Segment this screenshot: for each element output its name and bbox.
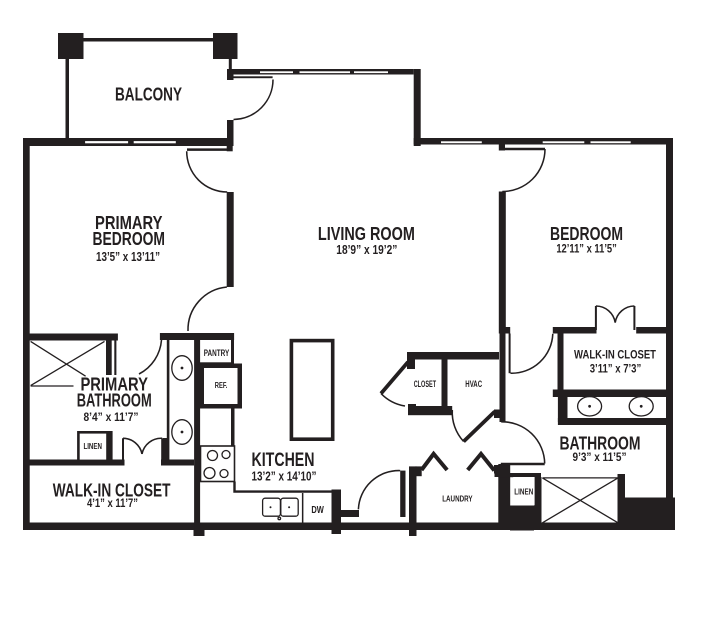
svg-text:9’3” x 11’5”: 9’3” x 11’5” <box>573 452 627 464</box>
svg-text:PANTRY: PANTRY <box>204 348 230 358</box>
svg-text:3’11” x 7’3”: 3’11” x 7’3” <box>590 361 642 375</box>
svg-text:13’5” x 13’11”: 13’5” x 13’11” <box>96 250 160 264</box>
svg-text:LINEN: LINEN <box>83 441 102 451</box>
svg-text:CLOSET: CLOSET <box>414 379 437 389</box>
svg-text:BEDROOM: BEDROOM <box>93 229 166 249</box>
svg-text:KITCHEN: KITCHEN <box>252 450 315 471</box>
svg-text:DW: DW <box>311 505 324 516</box>
svg-text:REF.: REF. <box>215 381 228 390</box>
svg-text:BATHROOM: BATHROOM <box>560 433 641 454</box>
svg-text:18’9” x 19’2”: 18’9” x 19’2” <box>336 243 397 257</box>
svg-text:12’11” x 11’5”: 12’11” x 11’5” <box>556 242 617 256</box>
svg-text:LIVING ROOM: LIVING ROOM <box>318 223 415 244</box>
svg-text:LINEN: LINEN <box>514 486 533 496</box>
svg-text:13’2” x 14’10”: 13’2” x 14’10” <box>252 469 317 483</box>
svg-text:BALCONY: BALCONY <box>115 84 182 105</box>
svg-text:8’4” x 11’7”: 8’4” x 11’7” <box>84 410 139 424</box>
svg-text:HVAC: HVAC <box>465 379 482 389</box>
svg-text:LAUNDRY: LAUNDRY <box>442 493 473 503</box>
svg-text:4’1” x 11’7”: 4’1” x 11’7” <box>87 498 138 510</box>
svg-text:BATHROOM: BATHROOM <box>77 391 152 411</box>
svg-text:WALK-IN CLOSET: WALK-IN CLOSET <box>574 347 657 361</box>
